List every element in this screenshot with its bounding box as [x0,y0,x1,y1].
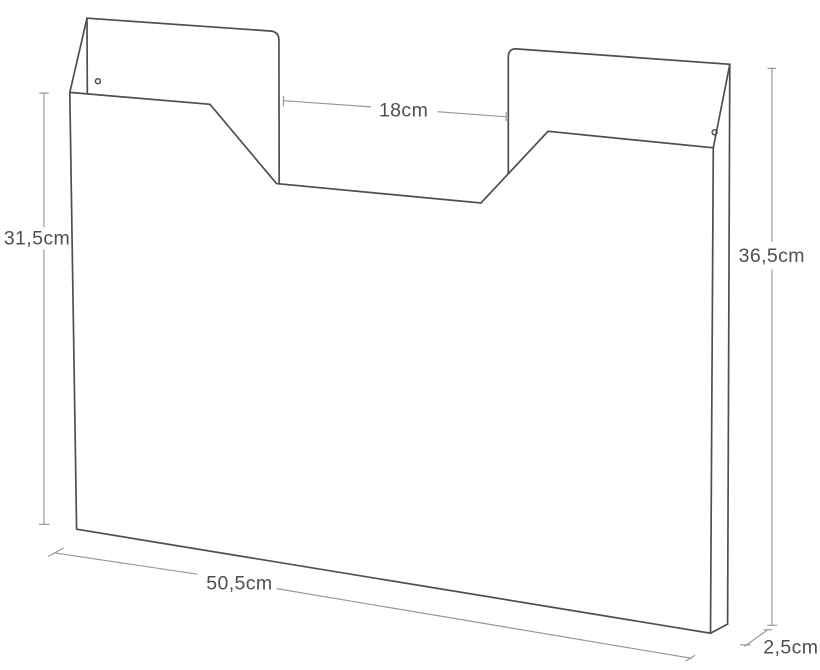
svg-text:2,5cm: 2,5cm [763,637,818,659]
svg-text:18cm: 18cm [379,99,428,121]
svg-text:31,5cm: 31,5cm [4,227,70,249]
svg-text:50,5cm: 50,5cm [206,572,272,594]
svg-text:36,5cm: 36,5cm [739,245,805,267]
